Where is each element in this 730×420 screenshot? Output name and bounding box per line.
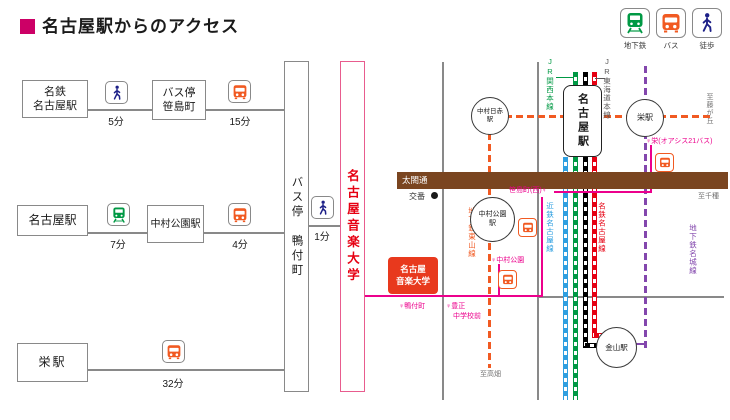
rail-jr-kansai-north: [573, 72, 578, 85]
jr-kansai-label-tick: [556, 77, 573, 78]
station-box-nakamura-koen: 中村公園駅: [147, 205, 204, 243]
rail-kintetsu-line: [563, 157, 568, 400]
college-map-box-line1: 名古屋: [400, 264, 426, 275]
college-box-vertical: 名古屋音楽大学: [340, 61, 365, 392]
line-label-jr-tokaido: JR東海道本線: [603, 57, 611, 120]
busstop-box-sasashima-line2: 笹島町: [163, 100, 196, 114]
subway-icon: [620, 8, 650, 38]
bus-icon-glyph: [659, 11, 683, 35]
busstop-label-nakamura-koen: ♀中村公園: [491, 255, 524, 265]
busstop-box-kamotsuke: バス停 鴨付町: [284, 61, 309, 392]
college-map-box-line2: 音楽大学: [396, 276, 430, 287]
station-nakamura-koen-line2: 駅: [489, 220, 496, 228]
title-bullet-square: [20, 19, 35, 34]
station-box-meitetsu-nagoya-line1: 名鉄: [44, 85, 66, 99]
busstop-label-sakae-oasis21: ♀栄(オアシス21バス): [646, 136, 712, 146]
station-nakamura-koen-line1: 中村公園: [479, 211, 507, 219]
line-label-meijo: 地下鉄名城線: [689, 224, 697, 275]
direction-label-chikusa: 至千種: [698, 191, 719, 201]
station-kanayama: 金山駅: [596, 327, 637, 368]
station-box-sakae: 栄駅: [17, 343, 88, 382]
bus-route-college-segment: [344, 295, 542, 297]
time-label-walk-1min: 1分: [308, 228, 336, 243]
connector-final-walk: [309, 225, 340, 227]
access-map-figure: 名古屋駅からのアクセス 地下鉄 バス: [0, 0, 730, 420]
time-label-bus-32min: 32分: [151, 375, 195, 390]
subway-icon-glyph: [623, 11, 647, 35]
walk-icon: [692, 8, 722, 38]
legend-label-subway: 地下鉄: [618, 40, 652, 51]
legend-label-walk: 徒歩: [690, 40, 724, 51]
station-nakamura-koen: 中村公園 駅: [470, 197, 515, 242]
legend-item-subway: 地下鉄: [618, 8, 652, 51]
line-label-meitetsu: 名鉄名古屋線: [598, 202, 606, 253]
station-nakamura-nisseki-line2: 駅: [487, 116, 494, 124]
walk-icon: [105, 81, 128, 104]
road-vertical-west: [442, 62, 444, 400]
direction-label-takabata: 至高畑: [480, 369, 501, 379]
bus-icon: [162, 340, 185, 363]
busstop-label-sasashima-west: 笹島町(西)♀: [509, 185, 547, 195]
station-box-nagoya: 名古屋駅: [17, 205, 88, 236]
legend-label-bus: バス: [654, 40, 688, 51]
station-nakamura-nisseki: 中村日赤 駅: [471, 97, 509, 135]
legend-item-bus: バス: [654, 8, 688, 51]
connector-row3: [88, 369, 284, 371]
busstop-box-sasashima: バス停 笹島町: [152, 80, 206, 120]
subway-icon: [107, 203, 130, 226]
time-label-bus-4min: 4分: [218, 236, 262, 251]
bus-icon: [655, 153, 674, 172]
college-map-box: 名古屋 音楽大学: [388, 257, 438, 294]
direction-label-fujigaoka: 至藤が丘: [706, 93, 713, 125]
station-nagoya: 名古屋駅: [563, 85, 602, 157]
bus-icon: [228, 203, 251, 226]
time-label-subway-7min: 7分: [98, 236, 138, 251]
station-box-meitetsu-nagoya-line2: 名古屋駅: [33, 99, 77, 113]
bus-route-south-segment: [541, 197, 543, 297]
busstop-label-toyosho-line2: 中学校前: [446, 311, 481, 321]
line-label-kintetsu: 近鉄名古屋線: [546, 202, 554, 253]
legend-item-walk: 徒歩: [690, 8, 724, 51]
rail-jr-kansai-line: [573, 157, 578, 400]
station-box-meitetsu-nagoya: 名鉄 名古屋駅: [22, 80, 88, 118]
busstop-label-toyosho-line1: ♀豊正: [446, 301, 481, 311]
bus-icon: [498, 270, 517, 289]
busstop-box-sasashima-line1: バス停: [163, 86, 196, 100]
station-nakamura-nisseki-line1: 中村日赤: [477, 108, 503, 116]
station-sakae: 栄駅: [626, 99, 664, 137]
bus-route-west-segment: [554, 191, 651, 193]
koban-label: 交番: [409, 191, 425, 202]
road-vertical-east: [537, 62, 539, 400]
time-label-walk-5min: 5分: [96, 113, 136, 128]
taiko-dori-road: 太閤通: [397, 172, 728, 189]
line-label-jr-kansai: JR関西本線: [546, 57, 554, 111]
koban-dot: [431, 192, 438, 199]
walk-icon-glyph: [695, 11, 719, 35]
subway-higashiyama-vertical: [488, 133, 491, 368]
page-title: 名古屋駅からのアクセス: [42, 12, 239, 37]
busstop-label-kamotsuke: ♀鴨付町: [399, 301, 425, 311]
busstop-label-toyosho: ♀豊正 中学校前: [446, 301, 481, 321]
bus-icon: [656, 8, 686, 38]
walk-icon: [311, 196, 334, 219]
bus-icon: [518, 218, 537, 237]
time-label-bus-15min: 15分: [218, 113, 262, 128]
bus-icon: [228, 80, 251, 103]
rail-jr-tokaido-north: [583, 72, 588, 85]
